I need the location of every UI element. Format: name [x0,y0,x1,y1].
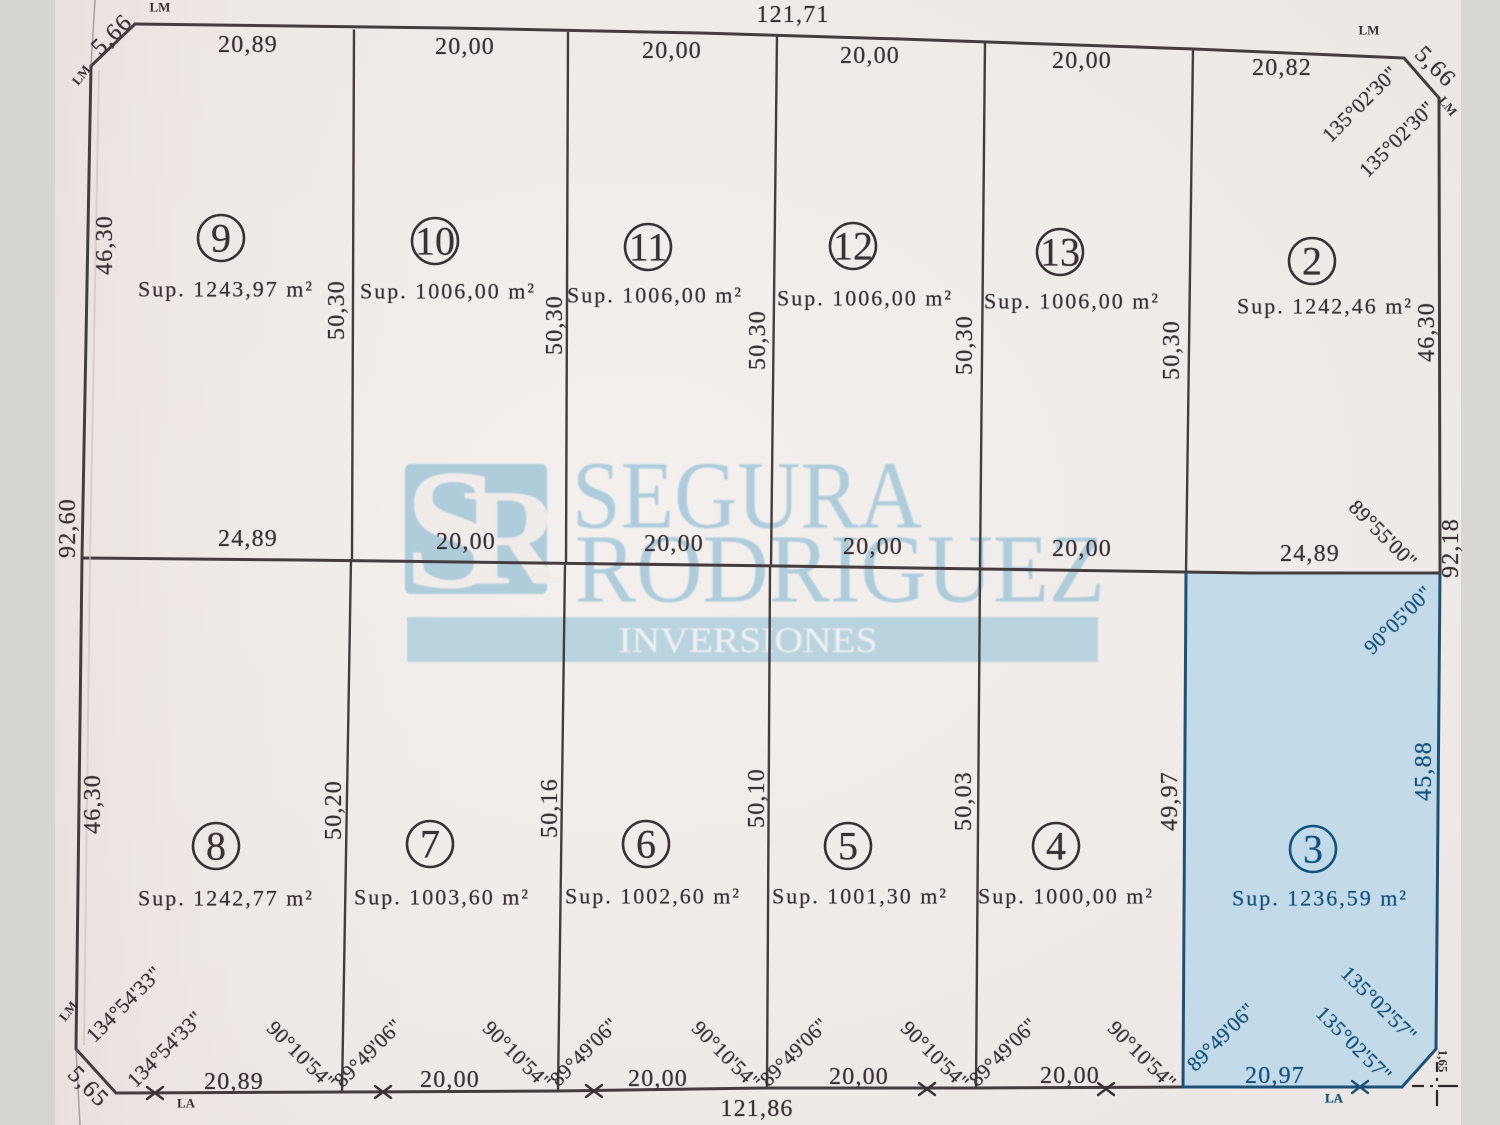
svg-text:2: 2 [1302,239,1322,284]
svg-text:20,00: 20,00 [1040,1063,1100,1089]
svg-text:8: 8 [206,824,226,869]
svg-text:20,00: 20,00 [1052,536,1112,562]
svg-text:20,00: 20,00 [843,534,903,560]
svg-text:50,03: 50,03 [951,771,977,831]
svg-text:11: 11 [629,225,668,270]
svg-text:20,00: 20,00 [829,1064,889,1090]
svg-text:LA: LA [177,1096,196,1111]
svg-text:92,18: 92,18 [1438,518,1464,578]
svg-text:Sup. 1002,60 m²: Sup. 1002,60 m² [565,884,741,909]
svg-text:20,00: 20,00 [644,531,704,557]
svg-text:50,30: 50,30 [542,295,568,355]
svg-text:49,97: 49,97 [1157,771,1183,831]
svg-text:46,30: 46,30 [92,215,118,275]
svg-text:10: 10 [415,219,455,264]
svg-text:INVERSIONES: INVERSIONES [619,620,878,660]
svg-text:Sup. 1236,59 m²: Sup. 1236,59 m² [1232,886,1408,911]
svg-text:24,89: 24,89 [218,526,278,552]
svg-text:20,89: 20,89 [218,32,278,58]
svg-text:Sup. 1006,00 m²: Sup. 1006,00 m² [567,283,743,308]
svg-text:Sup. 1242,46 m²: Sup. 1242,46 m² [1237,294,1413,319]
svg-text:50,20: 50,20 [321,780,347,840]
svg-text:Sup. 1006,00 m²: Sup. 1006,00 m² [984,289,1160,314]
svg-text:13: 13 [1040,230,1080,275]
svg-text:50,30: 50,30 [324,280,350,340]
svg-text:20,82: 20,82 [1252,55,1312,81]
svg-text:20,00: 20,00 [1052,48,1112,74]
svg-text:50,30: 50,30 [952,315,978,375]
svg-text:50,30: 50,30 [1159,320,1185,380]
svg-text:6: 6 [636,822,656,867]
svg-text:50,16: 50,16 [537,778,563,838]
svg-text:Sup. 1003,60 m²: Sup. 1003,60 m² [354,885,530,910]
svg-text:50,10: 50,10 [744,768,770,828]
svg-text:46,30: 46,30 [1414,302,1440,362]
svg-text:1,65: 1,65 [1436,1050,1451,1073]
svg-text:Sup. 1243,97 m²: Sup. 1243,97 m² [138,277,314,302]
svg-text:46,30: 46,30 [80,774,106,834]
svg-text:20,00: 20,00 [435,34,495,60]
svg-text:4: 4 [1046,824,1066,869]
svg-text:5: 5 [838,824,858,869]
svg-text:92,60: 92,60 [55,498,81,558]
svg-text:LM: LM [1359,23,1380,38]
svg-text:Sup. 1006,00 m²: Sup. 1006,00 m² [777,286,953,311]
svg-text:20,00: 20,00 [642,38,702,64]
svg-text:45,88: 45,88 [1411,741,1437,801]
svg-text:20,97: 20,97 [1245,1063,1305,1089]
svg-text:121,71: 121,71 [756,2,829,28]
svg-text:Sup. 1006,00 m²: Sup. 1006,00 m² [360,279,536,304]
svg-text:7: 7 [420,822,440,867]
svg-text:121,86: 121,86 [720,1096,793,1122]
svg-text:LA: LA [1325,1091,1344,1106]
svg-text:9: 9 [211,216,231,261]
svg-text:Sup. 1001,30 m²: Sup. 1001,30 m² [772,884,948,909]
svg-text:50,30: 50,30 [745,310,771,370]
svg-text:12: 12 [833,224,873,269]
svg-text:Sup. 1242,77 m²: Sup. 1242,77 m² [138,886,314,911]
svg-text:24,89: 24,89 [1280,541,1340,567]
svg-text:20,00: 20,00 [420,1067,480,1093]
svg-text:20,00: 20,00 [436,529,496,555]
svg-text:20,00: 20,00 [628,1066,688,1092]
svg-text:20,89: 20,89 [204,1069,264,1095]
svg-text:LM: LM [150,0,171,15]
svg-text:20,00: 20,00 [840,43,900,69]
svg-text:3: 3 [1303,827,1323,872]
svg-text:Sup. 1000,00 m²: Sup. 1000,00 m² [978,884,1154,909]
